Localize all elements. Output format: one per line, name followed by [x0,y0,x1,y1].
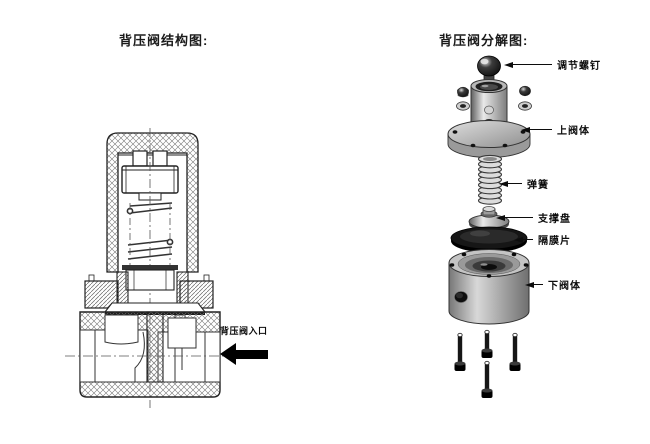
leader-arrow-icon [496,215,505,221]
inlet-arrow-icon [220,343,268,365]
part-label-adjust-screw: 调节螺钉 [504,57,601,72]
part-label-spring: 弹簧 [499,176,549,191]
leader-arrow-icon [499,181,508,187]
piston-section [122,265,178,290]
leader-line [513,64,552,66]
part-label-lower-valve-body: 下阀体 [525,277,581,292]
leader-line [523,239,533,241]
upper-valve-body-part [448,80,532,158]
part-label-diaphragm: 隔膜片 [514,232,571,247]
structural-cross-section-drawing [55,120,295,440]
leader-line [534,284,543,286]
leader-line [508,183,522,185]
part-label-upper-valve-body: 上阀体 [521,122,590,137]
lower-body-section [65,312,235,397]
structural-diagram-title: 背压阀结构图: [119,30,208,49]
part-label-text: 调节螺钉 [557,57,601,72]
leader-arrow-icon [521,127,530,133]
page: { "figures": { "left": { "title": "背压阀结构… [0,0,650,444]
inlet-label: 背压阀入口 [220,324,268,337]
leader-arrow-icon [504,62,513,68]
lower-valve-body-part [449,250,529,325]
leader-line [530,129,552,131]
part-label-text: 支撑盘 [538,210,571,225]
part-label-support-plate: 支撑盘 [496,210,571,225]
mounting-bolts-part [455,330,521,398]
leader-line [505,217,533,219]
exploded-diagram-title: 背压阀分解图: [439,30,528,49]
part-label-text: 隔膜片 [538,232,571,247]
part-label-text: 下阀体 [548,277,581,292]
leader-arrow-icon [514,237,523,243]
leader-arrow-icon [525,282,534,288]
part-label-text: 弹簧 [527,176,549,191]
part-label-text: 上阀体 [557,122,590,137]
